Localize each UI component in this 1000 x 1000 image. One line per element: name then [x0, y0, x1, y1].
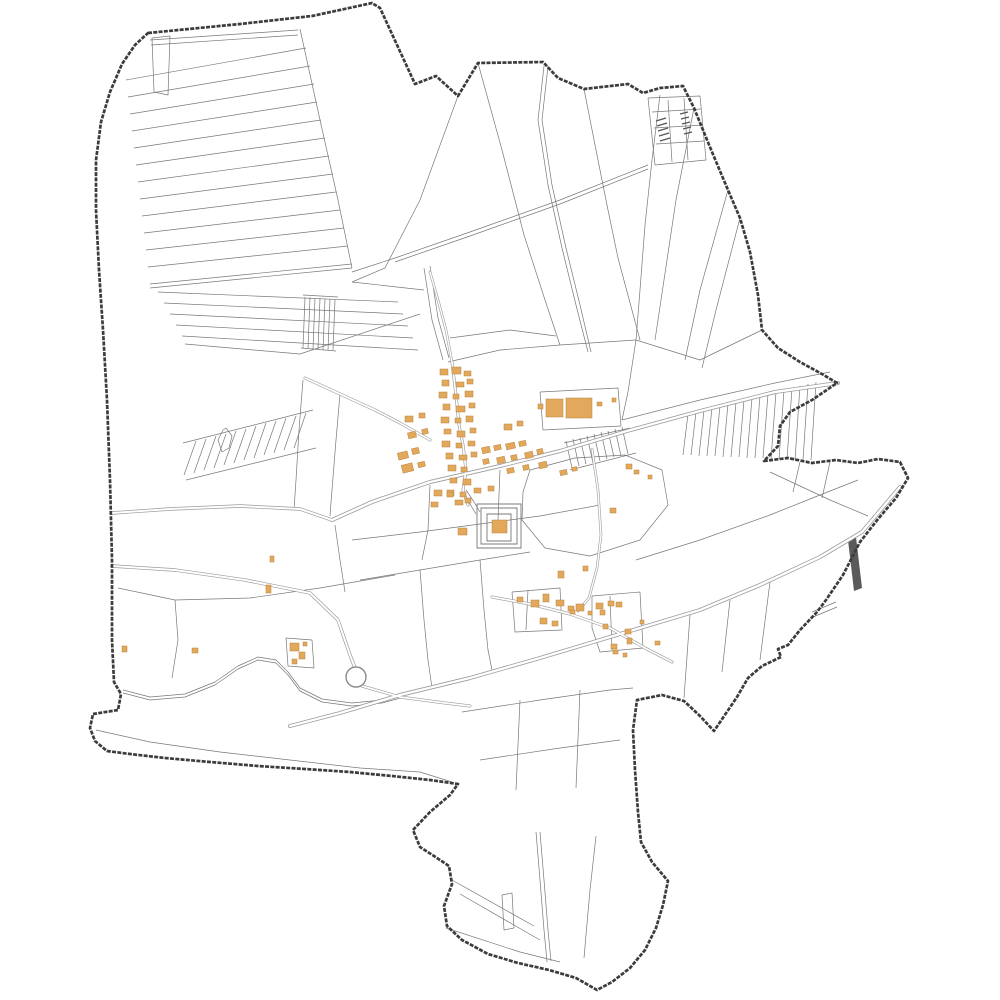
building [470, 428, 476, 433]
building [444, 429, 451, 434]
building [552, 621, 558, 626]
pond [346, 667, 366, 687]
building [469, 403, 475, 408]
building [464, 371, 471, 376]
building [613, 650, 618, 654]
building [122, 646, 127, 652]
building [538, 404, 543, 409]
building [596, 603, 603, 609]
building [608, 601, 614, 606]
building [546, 399, 563, 417]
building [471, 452, 477, 457]
building [537, 448, 544, 454]
building [452, 367, 461, 374]
building [463, 479, 471, 485]
building [441, 417, 449, 423]
building [597, 402, 602, 406]
building [511, 454, 518, 460]
building [465, 391, 473, 397]
building [531, 600, 539, 607]
cadastral-map-svg [0, 0, 1000, 1000]
building [419, 413, 425, 418]
building [627, 638, 632, 644]
building [655, 641, 660, 645]
building [292, 659, 297, 664]
building [455, 418, 461, 423]
building [648, 475, 652, 479]
building [504, 424, 512, 430]
building [461, 467, 467, 472]
building [460, 492, 466, 497]
building [543, 594, 549, 602]
building [626, 464, 632, 469]
building [443, 404, 450, 410]
building [474, 488, 481, 493]
building [583, 566, 588, 571]
building [610, 508, 616, 513]
building [625, 629, 631, 634]
building [434, 490, 442, 496]
building [465, 498, 471, 503]
building [192, 648, 198, 653]
building [572, 466, 578, 471]
building [483, 458, 490, 464]
building [616, 602, 622, 607]
building [290, 643, 299, 651]
building [558, 571, 564, 578]
building [634, 470, 639, 474]
building [468, 441, 475, 446]
building [446, 453, 453, 459]
building [456, 406, 465, 412]
building [448, 465, 456, 471]
building [303, 642, 307, 646]
building [488, 486, 494, 491]
building [458, 528, 467, 535]
building [600, 610, 605, 615]
map-background [0, 0, 1000, 1000]
building [456, 382, 464, 387]
building [517, 421, 523, 426]
building [611, 644, 617, 649]
building [442, 380, 449, 386]
building [576, 604, 584, 611]
building [588, 611, 592, 615]
map-canvas [0, 0, 1000, 1000]
building [442, 441, 450, 447]
building [421, 428, 428, 434]
building [540, 618, 547, 624]
building [523, 464, 530, 470]
building [457, 431, 465, 437]
building [270, 556, 274, 562]
building [440, 369, 448, 375]
building [492, 520, 507, 533]
building [566, 398, 592, 418]
building [431, 502, 438, 507]
building [556, 600, 564, 606]
building [517, 597, 523, 602]
building [456, 443, 462, 448]
building [623, 653, 627, 657]
building [467, 379, 473, 384]
building [299, 652, 305, 659]
building [459, 455, 467, 460]
building [405, 416, 413, 422]
building [266, 585, 271, 593]
building [453, 394, 459, 399]
building [466, 416, 473, 422]
building [570, 610, 575, 614]
building [612, 398, 616, 402]
building [603, 624, 608, 629]
building [439, 392, 447, 398]
building [455, 500, 463, 505]
building [447, 492, 453, 497]
building [640, 620, 644, 624]
building [450, 478, 457, 483]
